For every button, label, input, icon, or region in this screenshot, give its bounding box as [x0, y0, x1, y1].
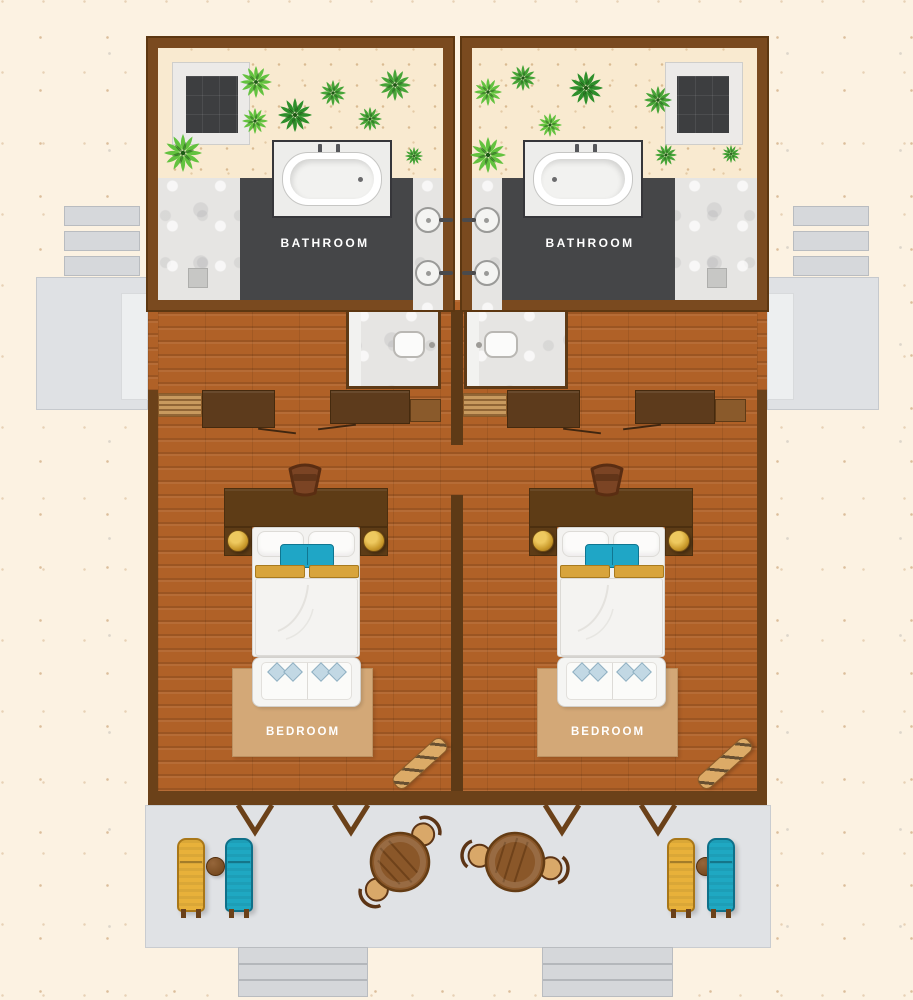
shower-icon: [677, 76, 729, 133]
sink-icon: [415, 207, 441, 233]
right-entry-step: [793, 206, 869, 226]
shower-icon: [186, 76, 238, 133]
deck-side-table: [206, 857, 225, 876]
bathtub-pad: [272, 140, 392, 218]
bathroom-label: BATHROOM: [546, 236, 635, 250]
sink-icon: [474, 260, 500, 286]
bathroom-label: BATHROOM: [281, 236, 370, 250]
right-entry-step: [793, 256, 869, 276]
bathtub-icon: [533, 152, 633, 206]
left-entry-step: [64, 256, 140, 276]
right-door-landing: [767, 293, 794, 400]
sun-lounger-yellow: [177, 838, 205, 912]
sink-faucet-icon: [462, 218, 476, 222]
sun-lounger-teal: [225, 838, 253, 912]
sink-icon: [415, 260, 441, 286]
sink-icon: [474, 207, 500, 233]
toilet-icon: [393, 331, 425, 358]
wc-room-right: [464, 305, 568, 389]
sink-faucet-icon: [462, 271, 476, 275]
wc-wall-strip: [349, 308, 361, 386]
right-entry-step: [793, 231, 869, 251]
floor-plan-canvas: BATHROOM BATHROOM: [0, 0, 913, 1000]
toilet-icon: [484, 331, 518, 358]
party-wall-lower: [451, 495, 463, 791]
sun-lounger-teal: [707, 838, 735, 912]
toilet-flush-icon: [476, 342, 482, 348]
left-door-landing: [121, 293, 148, 400]
left-entry-step: [64, 231, 140, 251]
bedroom-building: [148, 300, 767, 805]
shower-pad: [665, 62, 743, 145]
bathroom-block-right: BATHROOM: [462, 38, 767, 310]
deck-steps-right: [542, 947, 673, 997]
party-wall-upper: [451, 310, 463, 445]
toilet-flush-icon: [429, 342, 435, 348]
left-entry-step: [64, 206, 140, 226]
bathroom-block-left: BATHROOM: [148, 38, 453, 310]
bathroom-door-opening: [413, 300, 443, 310]
wc-room-left: [346, 305, 441, 389]
bathtub-icon: [282, 152, 382, 206]
sun-lounger-yellow: [667, 838, 695, 912]
bathroom-door-opening: [472, 300, 502, 310]
deck-steps-left: [238, 947, 368, 997]
shower-drain: [707, 268, 727, 288]
shower-drain: [188, 268, 208, 288]
shower-pad: [172, 62, 250, 145]
bathtub-pad: [523, 140, 643, 218]
left-side-door-opening: [148, 307, 158, 390]
right-side-door-opening: [757, 307, 767, 390]
sink-faucet-icon: [439, 271, 453, 275]
sink-faucet-icon: [439, 218, 453, 222]
